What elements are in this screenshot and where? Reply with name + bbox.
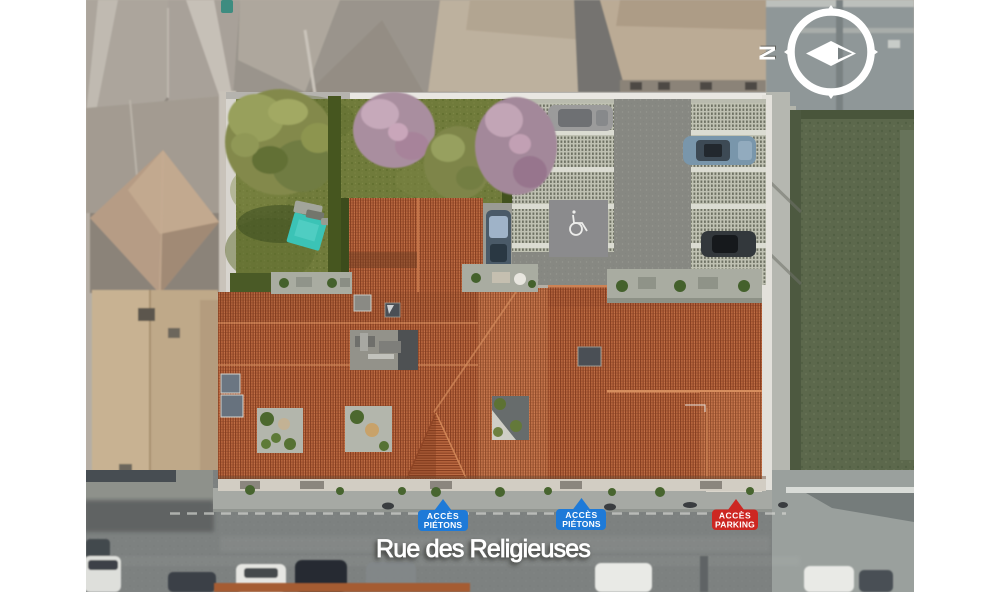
svg-text:PIÉTONS: PIÉTONS [424, 520, 463, 530]
svg-text:N: N [755, 45, 780, 61]
svg-text:PIÉTONS: PIÉTONS [562, 519, 601, 529]
svg-text:PARKING: PARKING [715, 520, 755, 530]
svg-text:Rue des Religieuses: Rue des Religieuses [376, 535, 590, 563]
